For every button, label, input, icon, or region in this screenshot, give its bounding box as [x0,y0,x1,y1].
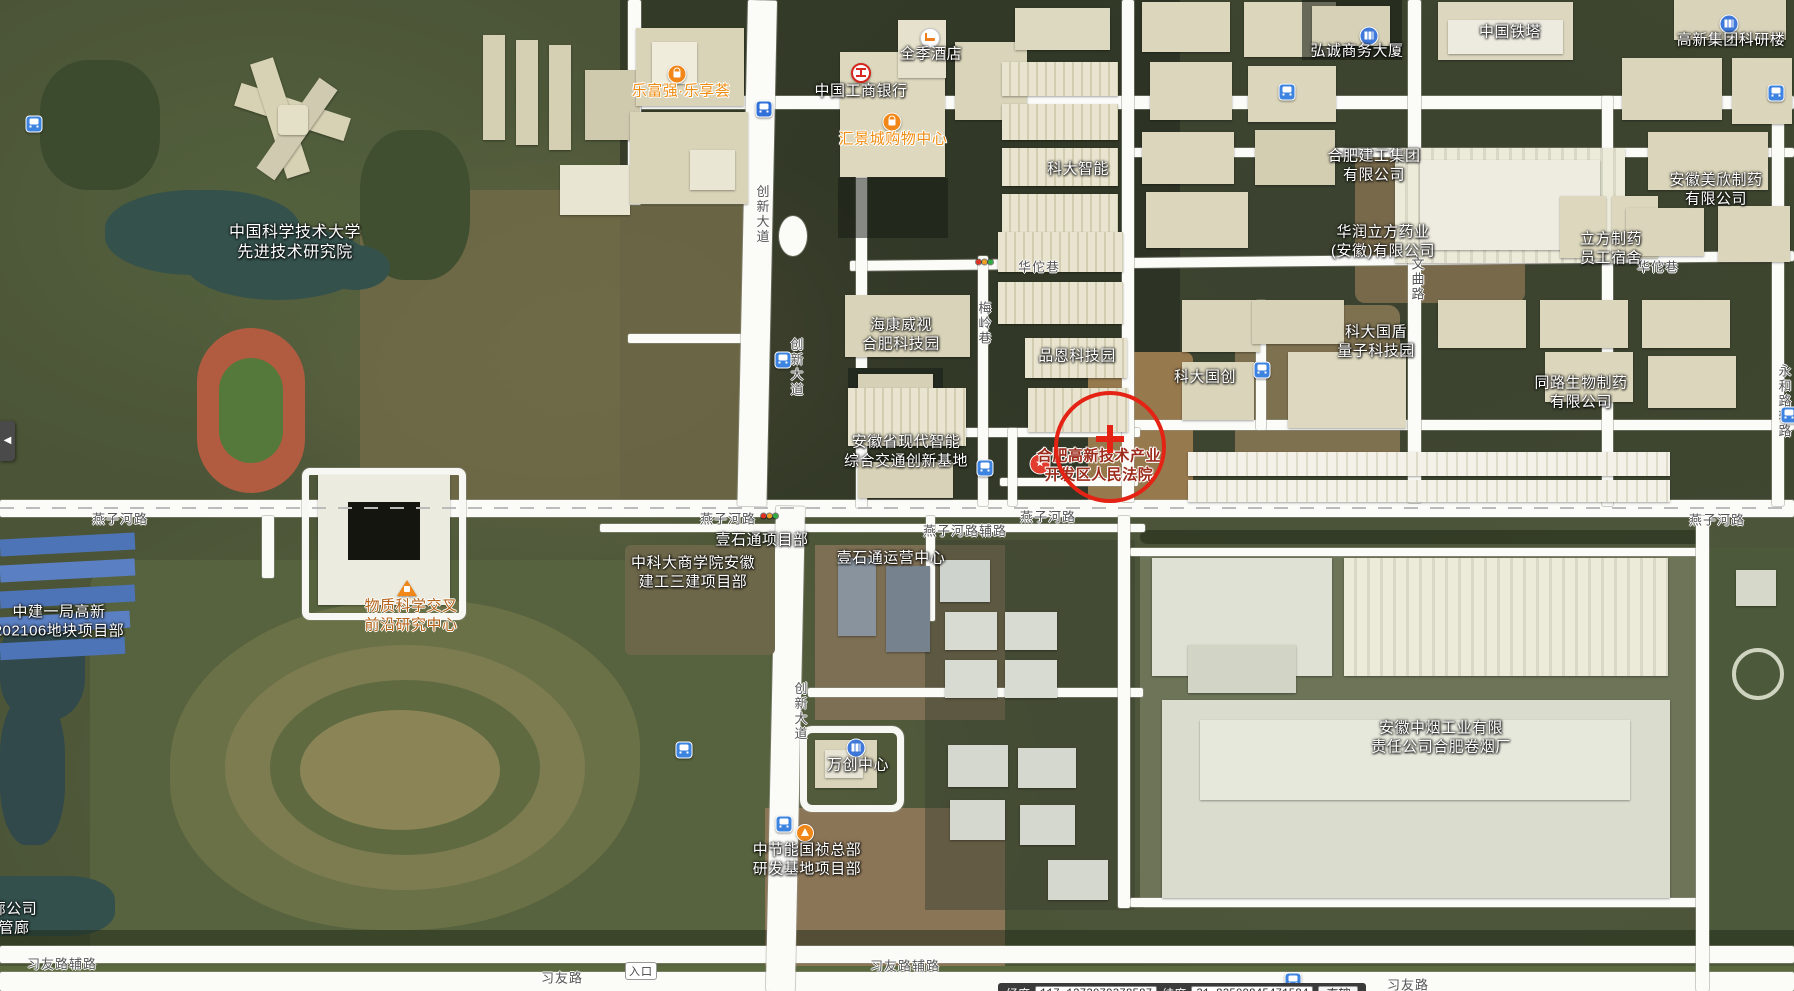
poi-label[interactable]: 科大国创 [1174,369,1236,388]
road-label: 燕子河路辅路 [923,521,1007,540]
poi-label[interactable]: 安徽中烟工业有限责任公司合肥卷烟厂 [1371,719,1511,757]
road-label: 创新大道 [756,185,769,245]
poi-label[interactable]: 海康威视合肥科技园 [862,316,940,354]
bus-stop-icon[interactable] [775,352,792,369]
satellite-map[interactable]: 中国科学技术大学先进技术研究院全季酒店中国工商银行汇景城购物中心乐富强·乐享荟科… [0,0,1794,991]
poi-label[interactable]: 物质科学交叉前沿研究中心 [364,597,457,635]
latitude-label: 纬度 [1162,986,1186,991]
bus-stop-icon[interactable] [1768,85,1785,102]
bus-stop-icon[interactable] [1279,84,1296,101]
poi-label[interactable]: 中建一局高新202106地块项目部 [0,603,124,641]
poi-label[interactable]: 廊公司管廊 [0,900,37,938]
road-label: 文曲路 [1411,258,1424,303]
poi-label[interactable]: 科大智能 [1047,161,1109,180]
poi-label[interactable]: 中节能国祯总部研发基地项目部 [753,841,862,879]
bus-stop-icon[interactable] [977,460,994,477]
bank-icon[interactable] [851,63,871,83]
road-label: 创新大道 [794,682,807,742]
road-label: 习友路辅路 [870,956,940,975]
lab-icon[interactable] [796,824,814,842]
road-label: 燕子河路 [92,509,148,528]
poi-label[interactable]: 高新集团科研楼 [1677,32,1786,51]
poi-label[interactable]: 立方制药员工宿舍 [1580,230,1642,268]
bus-stop-icon[interactable] [1781,407,1794,424]
bus-stop-icon[interactable] [1254,362,1271,379]
road-label: 梅岭巷 [978,302,991,347]
poi-label[interactable]: 乐富强·乐享荟 [632,83,731,102]
poi-label[interactable]: 万创中心 [827,757,889,776]
poi-label[interactable]: 中国铁塔 [1479,24,1541,43]
panel-collapse-button[interactable]: ◀ [0,421,15,461]
road-label: 燕子河路 [700,509,756,528]
poi-label[interactable]: 弘诚商务大厦 [1310,43,1403,62]
road-label: 华佗巷 [1637,257,1679,276]
road-label: 燕子河路 [1020,507,1076,526]
poi-label[interactable]: 中国工商银行 [814,83,907,102]
construction-icon[interactable] [397,580,417,596]
longitude-value[interactable]: 117.1273079378587 [1035,986,1157,991]
road-label: 习友路 [541,968,583,987]
traffic-light-icon [761,513,781,520]
road-label: 华佗巷 [1018,257,1060,276]
building-icon[interactable] [847,739,866,758]
entrance-label: 入口 [625,962,657,980]
longitude-label: 经度 [1006,986,1030,991]
shopping-icon[interactable] [668,65,687,84]
poi-label[interactable]: 品恩科技园 [1038,348,1116,367]
poi-label[interactable]: 安徽美欣制药有限公司 [1669,171,1762,209]
bus-stop-icon[interactable] [26,116,43,133]
bus-stop-icon[interactable] [776,816,793,833]
road-label: 习友路 [1387,975,1429,991]
road-label: 习友路辅路 [27,954,97,973]
poi-label[interactable]: 壹石通项目部 [715,532,808,551]
coordinate-bar: 经度 117.1273079378587 纬度 31.8250984547158… [998,983,1366,991]
poi-label[interactable]: 安徽省现代智能综合交通创新基地 [844,433,968,471]
region-button[interactable]: 直辖 [1318,986,1358,991]
road-label: 燕子河路 [1689,510,1745,529]
poi-label[interactable]: 科大国盾量子科技园 [1337,323,1415,361]
poi-label[interactable]: 合肥高新技术产业开发区人民法院 [1037,447,1161,485]
bus-stop-icon[interactable] [676,742,693,759]
poi-label[interactable]: 中国科学技术大学先进技术研究院 [229,223,361,263]
traffic-light-icon [976,259,996,266]
poi-label[interactable]: 壹石通运营中心 [837,550,946,569]
metro-station-icon[interactable] [756,101,773,118]
poi-label[interactable]: 中科大商学院安徽建工三建项目部 [631,554,755,592]
poi-label[interactable]: 汇景城购物中心 [839,131,948,150]
road-label: 永和路辅路 [1778,365,1791,440]
shopping-icon[interactable] [883,113,902,132]
poi-label[interactable]: 合肥建工集团有限公司 [1327,147,1420,185]
poi-label[interactable]: 同路生物制药有限公司 [1534,374,1627,412]
poi-label[interactable]: 华润立方药业(安徽)有限公司 [1331,223,1435,261]
poi-label[interactable]: 全季酒店 [900,46,962,65]
road-label: 创新大道 [790,338,803,398]
latitude-value[interactable]: 31.82509845471584 [1191,986,1313,991]
